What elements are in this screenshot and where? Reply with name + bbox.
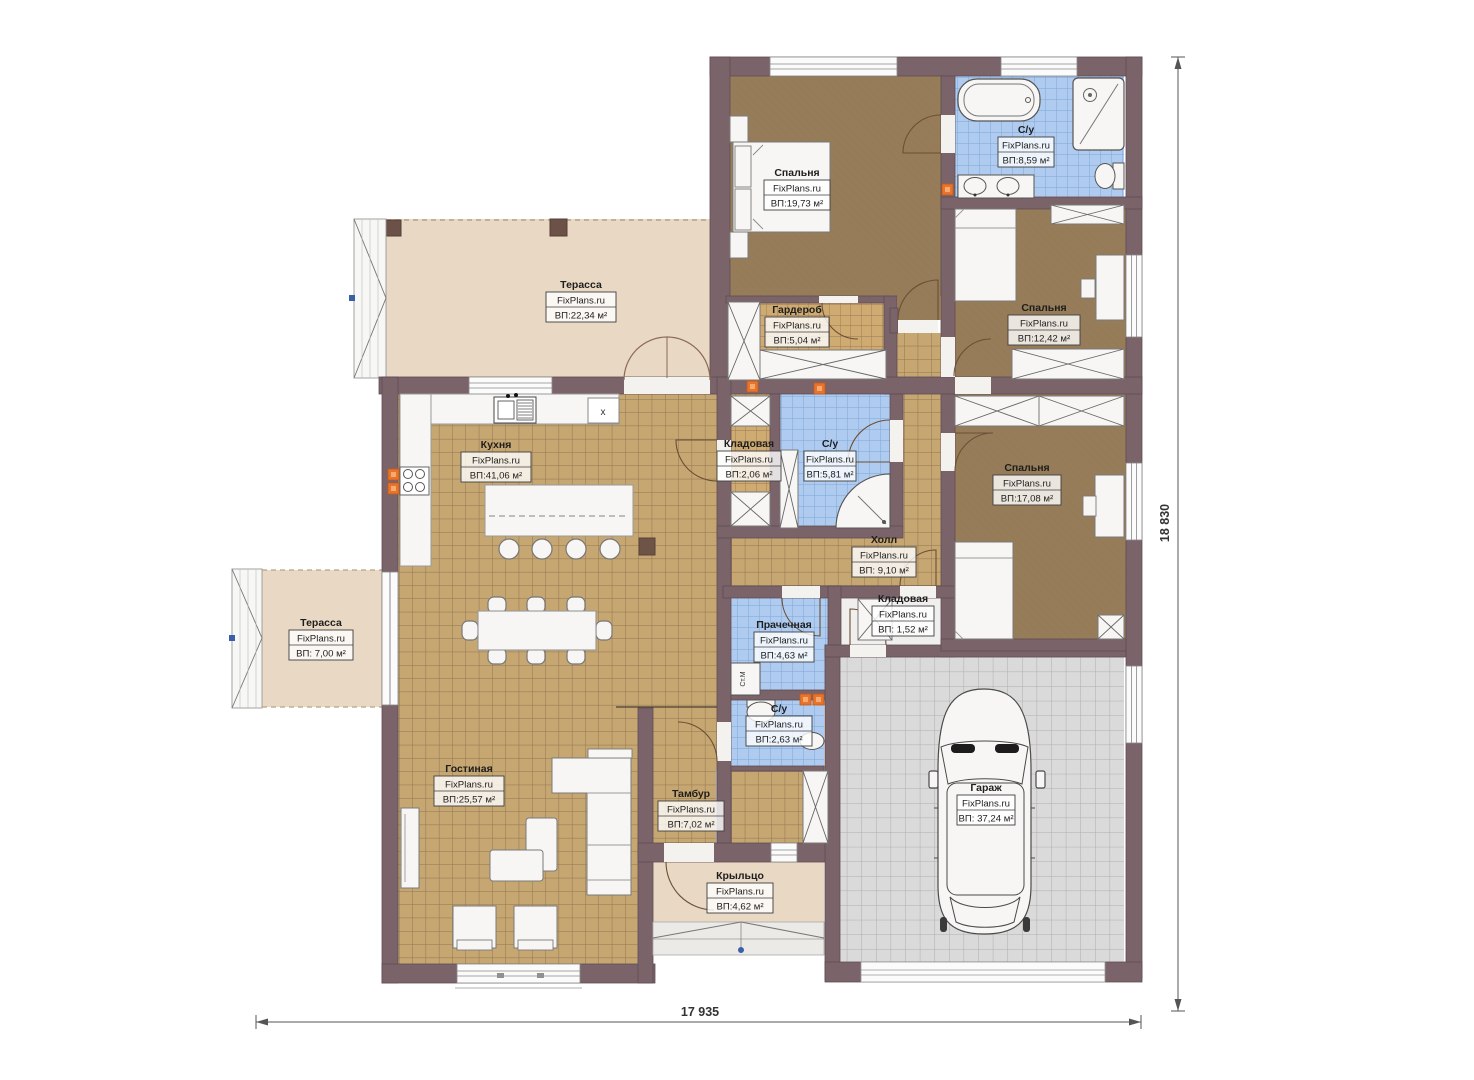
svg-text:FixPlans.ru: FixPlans.ru xyxy=(557,296,605,307)
svg-text:FixPlans.ru: FixPlans.ru xyxy=(879,610,927,621)
svg-text:ВП:4,63 м²: ВП:4,63 м² xyxy=(760,651,808,662)
svg-text:FixPlans.ru: FixPlans.ru xyxy=(1020,319,1068,330)
svg-text:FixPlans.ru: FixPlans.ru xyxy=(773,321,821,332)
svg-text:ВП:25,57 м²: ВП:25,57 м² xyxy=(443,795,496,806)
svg-text:ВП:8,59 м²: ВП:8,59 м² xyxy=(1002,156,1050,167)
svg-text:FixPlans.ru: FixPlans.ru xyxy=(297,634,345,645)
svg-text:Гардероб: Гардероб xyxy=(772,304,822,316)
svg-text:FixPlans.ru: FixPlans.ru xyxy=(755,720,803,731)
svg-text:FixPlans.ru: FixPlans.ru xyxy=(860,551,908,562)
svg-text:ВП:4,62 м²: ВП:4,62 м² xyxy=(716,902,764,913)
svg-text:ВП:41,06 м²: ВП:41,06 м² xyxy=(470,471,523,482)
svg-text:Тамбур: Тамбур xyxy=(672,788,710,800)
svg-text:ВП: 9,10 м²: ВП: 9,10 м² xyxy=(859,566,910,577)
svg-text:Терасса: Терасса xyxy=(560,279,602,291)
svg-text:ВП:12,42 м²: ВП:12,42 м² xyxy=(1018,334,1071,345)
svg-text:С/у: С/у xyxy=(822,438,839,450)
svg-text:Терасса: Терасса xyxy=(300,617,342,629)
svg-text:FixPlans.ru: FixPlans.ru xyxy=(962,799,1010,810)
svg-text:ВП: 37,24 м²: ВП: 37,24 м² xyxy=(958,814,1014,825)
svg-text:ВП:17,08 м²: ВП:17,08 м² xyxy=(1001,494,1054,505)
svg-text:FixPlans.ru: FixPlans.ru xyxy=(667,805,715,816)
svg-text:ВП:2,63 м²: ВП:2,63 м² xyxy=(755,735,803,746)
svg-text:Спальня: Спальня xyxy=(1004,462,1049,474)
svg-text:Гараж: Гараж xyxy=(970,782,1002,794)
svg-text:ВП:5,81 м²: ВП:5,81 м² xyxy=(806,470,854,481)
svg-text:FixPlans.ru: FixPlans.ru xyxy=(472,456,520,467)
svg-text:ВП:7,02 м²: ВП:7,02 м² xyxy=(667,820,715,831)
svg-text:ВП: 1,52 м²: ВП: 1,52 м² xyxy=(878,625,929,636)
svg-text:FixPlans.ru: FixPlans.ru xyxy=(445,780,493,791)
svg-text:x: x xyxy=(601,407,606,418)
svg-text:ВП:22,34 м²: ВП:22,34 м² xyxy=(555,311,608,322)
svg-text:Кухня: Кухня xyxy=(481,439,512,451)
svg-text:ВП:5,04 м²: ВП:5,04 м² xyxy=(773,336,821,347)
svg-text:Гостиная: Гостиная xyxy=(445,763,492,775)
svg-text:Прачечная: Прачечная xyxy=(756,619,812,631)
svg-text:FixPlans.ru: FixPlans.ru xyxy=(1003,479,1051,490)
svg-text:Спальня: Спальня xyxy=(1021,302,1066,314)
svg-text:Холл: Холл xyxy=(871,534,897,546)
svg-text:Кладовая: Кладовая xyxy=(724,438,774,450)
svg-text:Кладовая: Кладовая xyxy=(878,593,928,605)
svg-text:С/у: С/у xyxy=(1018,124,1035,136)
svg-text:ВП:19,73 м²: ВП:19,73 м² xyxy=(771,199,824,210)
svg-text:Спальня: Спальня xyxy=(774,167,819,179)
svg-text:ВП:2,06 м²: ВП:2,06 м² xyxy=(725,470,773,481)
svg-text:FixPlans.ru: FixPlans.ru xyxy=(716,887,764,898)
svg-text:Ст.М: Ст.М xyxy=(740,671,747,686)
svg-text:17 935: 17 935 xyxy=(681,1005,719,1019)
svg-text:FixPlans.ru: FixPlans.ru xyxy=(1002,141,1050,152)
svg-text:FixPlans.ru: FixPlans.ru xyxy=(806,455,854,466)
svg-text:FixPlans.ru: FixPlans.ru xyxy=(773,184,821,195)
svg-text:FixPlans.ru: FixPlans.ru xyxy=(725,455,773,466)
svg-text:С/у: С/у xyxy=(771,703,788,715)
svg-text:18 830: 18 830 xyxy=(1158,504,1172,542)
svg-text:FixPlans.ru: FixPlans.ru xyxy=(760,636,808,647)
svg-text:ВП: 7,00 м²: ВП: 7,00 м² xyxy=(296,649,347,660)
svg-text:Крыльцо: Крыльцо xyxy=(716,870,764,882)
